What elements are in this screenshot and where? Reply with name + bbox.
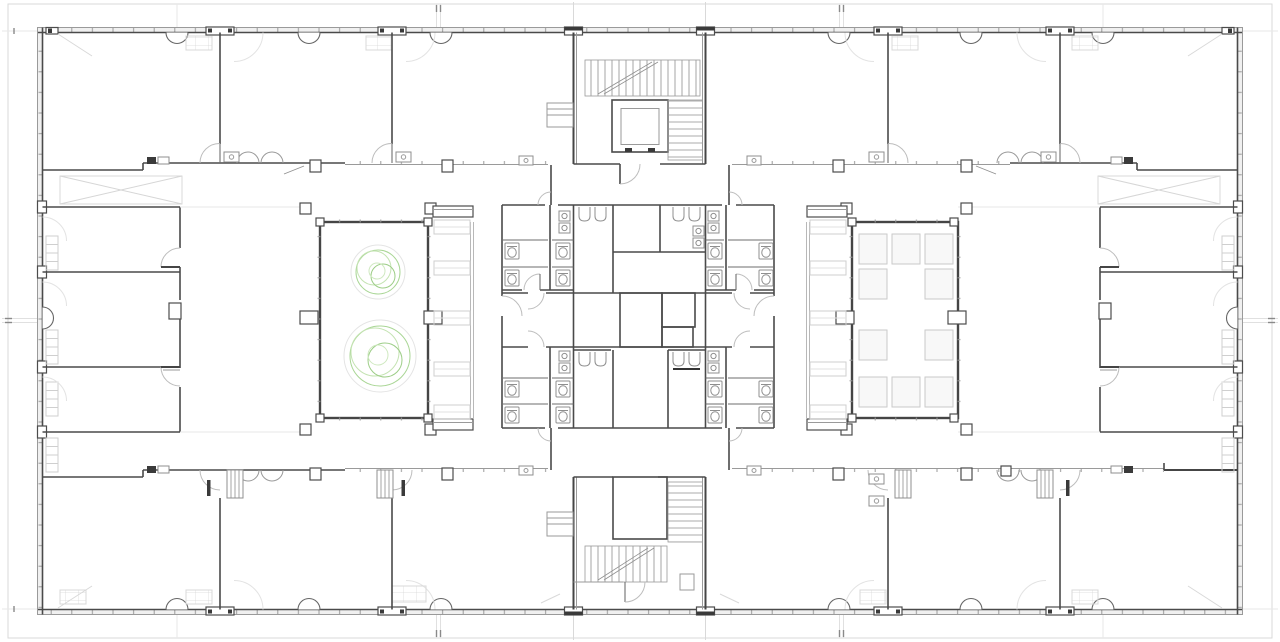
window-mullions-right <box>1238 34 1242 608</box>
stair-flight-right <box>668 100 703 160</box>
courtyard-window-box <box>300 311 318 324</box>
courtyard-window-box <box>948 311 966 324</box>
floor-plan-page <box>0 0 1280 642</box>
stair-flight-right <box>668 482 703 542</box>
stair-flight-lower <box>585 546 667 582</box>
stair-flight-upper <box>585 60 700 96</box>
building-footprint <box>37 27 1243 615</box>
floor-plan-drawing <box>0 0 1280 642</box>
